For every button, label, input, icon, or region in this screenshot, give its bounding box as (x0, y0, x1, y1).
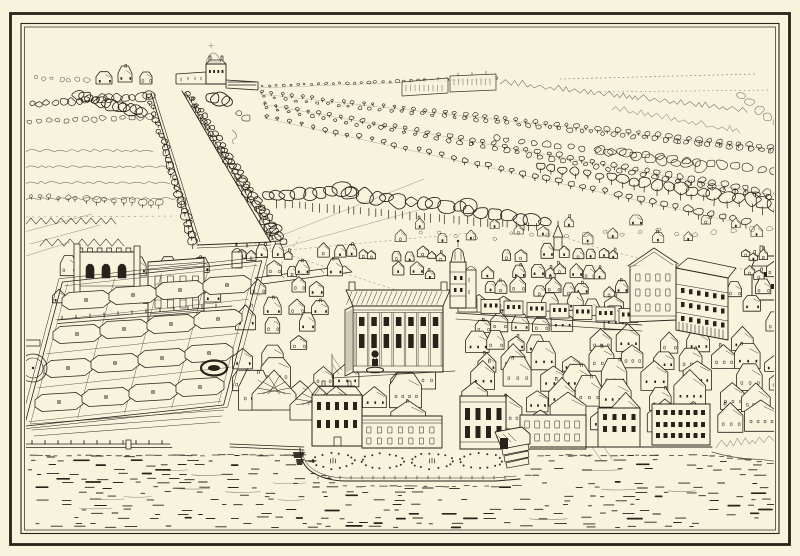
engraving-canvas: Bird's-eye view engraving of a riverside… (0, 0, 800, 556)
banqueting-house (332, 282, 455, 378)
pedimented-gallery (628, 248, 736, 340)
mall-tree-avenues (258, 77, 792, 231)
river-water (28, 455, 777, 528)
privy-garden (19, 257, 268, 450)
domed-gate-tower (450, 240, 476, 308)
canal-head-buildings (176, 43, 258, 144)
upper-left-groves (24, 65, 183, 257)
plate-content (19, 43, 800, 528)
engraving-plate: Bird's-eye view engraving of a riverside… (0, 0, 800, 556)
